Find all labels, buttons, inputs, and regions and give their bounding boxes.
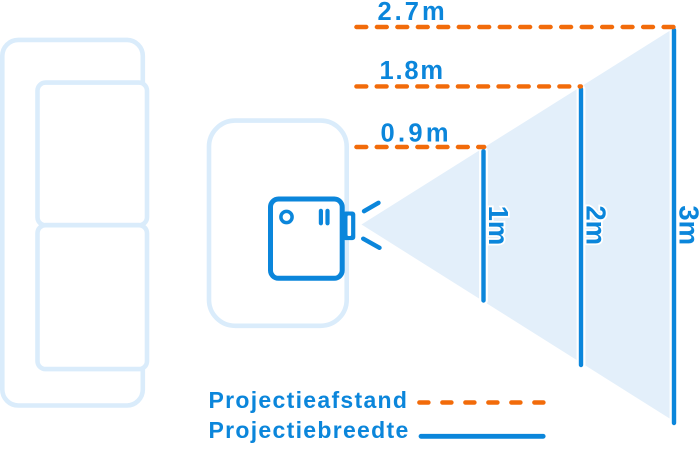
- svg-text:Projectiebreedte: Projectiebreedte: [209, 417, 410, 443]
- svg-text:Projectieafstand: Projectieafstand: [209, 387, 409, 413]
- svg-text:1m: 1m: [483, 206, 514, 246]
- svg-text:3m: 3m: [674, 205, 700, 245]
- svg-text:2.7m: 2.7m: [378, 0, 448, 26]
- svg-text:2m: 2m: [581, 205, 612, 245]
- svg-text:0.9m: 0.9m: [381, 119, 452, 147]
- svg-text:1.8m: 1.8m: [380, 57, 445, 85]
